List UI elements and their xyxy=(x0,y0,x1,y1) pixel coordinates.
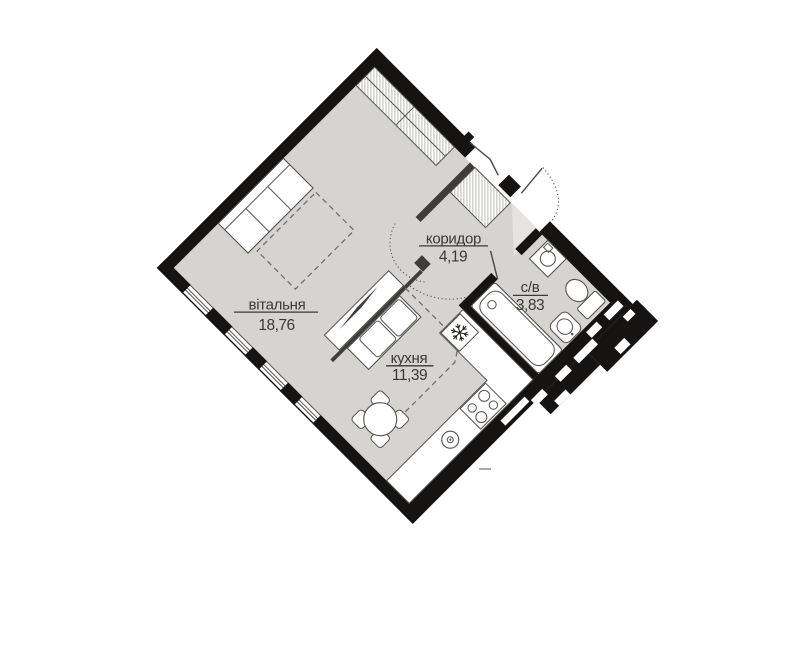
svg-text:коридор: коридор xyxy=(426,231,481,248)
svg-text:18,76: 18,76 xyxy=(258,317,294,334)
svg-text:4,19: 4,19 xyxy=(439,249,467,266)
svg-text:11,39: 11,39 xyxy=(392,367,427,384)
svg-text:кухня: кухня xyxy=(391,350,428,367)
svg-text:вітальня: вітальня xyxy=(249,297,306,314)
svg-text:3,83: 3,83 xyxy=(516,297,544,314)
svg-text:с/в: с/в xyxy=(521,279,540,296)
